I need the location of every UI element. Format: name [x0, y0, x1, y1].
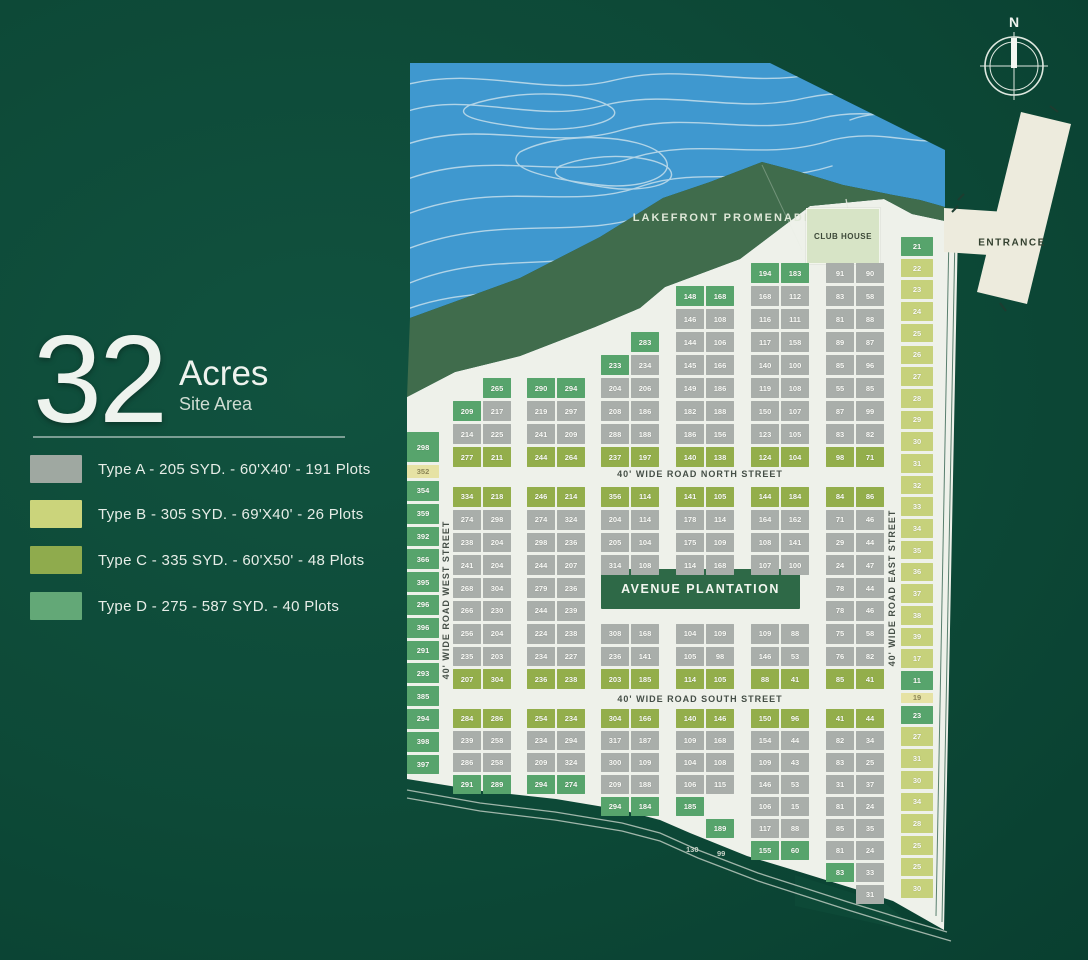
plot-cell[interactable]: 41: [856, 669, 884, 689]
plot-cell[interactable]: 182: [676, 401, 704, 421]
plot-cell[interactable]: 25: [901, 836, 933, 855]
plot-cell[interactable]: 44: [856, 533, 884, 553]
plot-cell[interactable]: 33: [901, 497, 933, 516]
plot-cell[interactable]: 35: [901, 541, 933, 560]
plot-cell[interactable]: 304: [483, 578, 511, 598]
plot-cell[interactable]: 60: [781, 841, 809, 860]
plot-cell[interactable]: 188: [706, 401, 734, 421]
plot-cell[interactable]: 294: [557, 731, 585, 750]
plot-cell[interactable]: 236: [557, 578, 585, 598]
plot-cell[interactable]: 294: [601, 797, 629, 816]
plot-cell[interactable]: 207: [557, 555, 585, 575]
plot-cell[interactable]: 168: [706, 555, 734, 575]
plot-cell[interactable]: 294: [557, 378, 585, 398]
plot-cell[interactable]: 30: [901, 432, 933, 451]
legend-item-type-a: Type A - 205 SYD. - 60'X40' - 191 Plots: [30, 455, 371, 483]
plot-cell[interactable]: 185: [676, 797, 704, 816]
plot-cell[interactable]: 398: [407, 732, 439, 752]
plot-cell[interactable]: 241: [453, 555, 481, 575]
plot-cell[interactable]: 308: [601, 624, 629, 644]
compass-icon: [980, 32, 1048, 100]
plot-cell[interactable]: 204: [483, 555, 511, 575]
plot-cell[interactable]: 356: [601, 487, 629, 507]
plot-cell[interactable]: 314: [601, 555, 629, 575]
plot-cell[interactable]: 324: [557, 753, 585, 772]
plot-cell[interactable]: 214: [557, 487, 585, 507]
plot-cell[interactable]: 164: [751, 510, 779, 530]
plot-cell[interactable]: 31: [901, 454, 933, 473]
plot-cell[interactable]: 304: [483, 669, 511, 689]
plot-cell[interactable]: 117: [751, 819, 779, 838]
plot-cell[interactable]: 100: [781, 355, 809, 375]
plot-cell[interactable]: 25: [901, 858, 933, 877]
plot-cell[interactable]: 184: [781, 487, 809, 507]
plot-cell[interactable]: 85: [826, 669, 854, 689]
plot-cell[interactable]: 274: [557, 775, 585, 794]
plot-cell[interactable]: 184: [631, 797, 659, 816]
plot-cell[interactable]: 227: [557, 647, 585, 667]
plot-cell[interactable]: 46: [856, 510, 884, 530]
plot-cell[interactable]: 298: [527, 533, 555, 553]
plot-cell[interactable]: 239: [557, 601, 585, 621]
plot-cell[interactable]: 81: [826, 841, 854, 860]
plot-cell[interactable]: 396: [407, 618, 439, 638]
plot-cell[interactable]: 83: [826, 286, 854, 306]
plot-cell[interactable]: 24: [856, 797, 884, 816]
plot-cell[interactable]: 24: [856, 841, 884, 860]
plot-cell[interactable]: 246: [527, 487, 555, 507]
plot-cell[interactable]: 203: [601, 669, 629, 689]
plot-cell[interactable]: 84: [826, 487, 854, 507]
plot-cell[interactable]: 71: [856, 447, 884, 467]
plot-cell[interactable]: 29: [901, 411, 933, 430]
plot-cell[interactable]: 238: [453, 533, 481, 553]
stray-plot-number: 130: [686, 845, 699, 854]
plot-cell[interactable]: 146: [706, 709, 734, 728]
plot-cell[interactable]: 155: [751, 841, 779, 860]
legend-swatch-type-d: [30, 592, 82, 620]
plot-cell[interactable]: 105: [706, 669, 734, 689]
plot-cell[interactable]: 106: [706, 332, 734, 352]
plot-cell[interactable]: 211: [483, 447, 511, 467]
plot-cell[interactable]: 88: [856, 309, 884, 329]
plot-cell[interactable]: 234: [631, 355, 659, 375]
plot-cell[interactable]: 234: [557, 709, 585, 728]
plot-cell[interactable]: 38: [901, 606, 933, 625]
plot-cell[interactable]: 286: [453, 753, 481, 772]
plot-cell[interactable]: 28: [901, 389, 933, 408]
plot-cell[interactable]: 83: [826, 863, 854, 882]
legend-item-type-d: Type D - 275 - 587 SYD. - 40 Plots: [30, 592, 339, 620]
plot-cell[interactable]: 27: [901, 727, 933, 746]
plot-cell[interactable]: 85: [826, 355, 854, 375]
plot-cell[interactable]: 99: [856, 401, 884, 421]
plot-cell[interactable]: 140: [751, 355, 779, 375]
plot-cell[interactable]: 44: [856, 709, 884, 728]
plot-cell[interactable]: 114: [676, 669, 704, 689]
lakefront-promenade-label: LAKEFRONT PROMENADE: [633, 212, 813, 224]
plot-cell[interactable]: 39: [901, 628, 933, 647]
plot-cell[interactable]: 104: [676, 624, 704, 644]
plot-cell[interactable]: 105: [676, 647, 704, 667]
plot-cell[interactable]: 82: [826, 731, 854, 750]
plot-cell[interactable]: 58: [856, 624, 884, 644]
plot-cell[interactable]: 238: [557, 624, 585, 644]
plot-cell[interactable]: 293: [407, 663, 439, 683]
plot-cell[interactable]: 108: [781, 378, 809, 398]
plot-cell[interactable]: 90: [856, 263, 884, 283]
plot-cell[interactable]: 395: [407, 572, 439, 592]
plot-cell[interactable]: 258: [483, 731, 511, 750]
plot-cell[interactable]: 209: [601, 775, 629, 794]
plot-cell[interactable]: 277: [453, 447, 481, 467]
plot-cell[interactable]: 286: [483, 709, 511, 728]
plot-cell[interactable]: 264: [557, 447, 585, 467]
plot-cell[interactable]: 82: [856, 647, 884, 667]
plot-cell[interactable]: 36: [901, 563, 933, 582]
plot-cell[interactable]: 207: [453, 669, 481, 689]
plot-cell[interactable]: 146: [751, 647, 779, 667]
plot-cell[interactable]: 150: [751, 709, 779, 728]
plot-cell[interactable]: 43: [781, 753, 809, 772]
club-house-block[interactable]: CLUB HOUSE: [806, 208, 880, 264]
plot-cell[interactable]: 298: [407, 432, 439, 462]
plot-cell[interactable]: 334: [453, 487, 481, 507]
plot-cell[interactable]: 168: [706, 731, 734, 750]
plot-cell[interactable]: 109: [751, 753, 779, 772]
plot-cell[interactable]: 186: [631, 401, 659, 421]
plot-cell[interactable]: 100: [781, 555, 809, 575]
plot-cell[interactable]: 366: [407, 549, 439, 569]
west-street-label: 40' WIDE ROAD WEST STREET: [441, 521, 451, 680]
plot-cell[interactable]: 244: [527, 447, 555, 467]
plot-cell[interactable]: 34: [856, 731, 884, 750]
plot-cell[interactable]: 237: [601, 447, 629, 467]
plot-cell[interactable]: 283: [631, 332, 659, 352]
plot-cell[interactable]: 185: [631, 669, 659, 689]
plot-cell[interactable]: 25: [856, 753, 884, 772]
plot-cell[interactable]: 22: [901, 259, 933, 278]
plot-cell[interactable]: 239: [453, 731, 481, 750]
plot-cell[interactable]: 234: [527, 731, 555, 750]
plot-cell[interactable]: 89: [826, 332, 854, 352]
plot-cell[interactable]: 82: [856, 424, 884, 444]
plot-cell[interactable]: 44: [856, 578, 884, 598]
plot-cell[interactable]: 27: [901, 367, 933, 386]
plot-cell[interactable]: 28: [901, 814, 933, 833]
plot-cell[interactable]: 297: [557, 401, 585, 421]
plot-cell[interactable]: 178: [676, 510, 704, 530]
plot-cell[interactable]: 359: [407, 504, 439, 524]
plot-cell[interactable]: 53: [781, 775, 809, 794]
plot-cell[interactable]: 274: [527, 510, 555, 530]
plot-cell[interactable]: 11: [901, 671, 933, 690]
plot-cell[interactable]: 256: [453, 624, 481, 644]
plot-cell[interactable]: 298: [483, 510, 511, 530]
plot-cell[interactable]: 138: [706, 447, 734, 467]
plot-cell[interactable]: 274: [453, 510, 481, 530]
plot-cell[interactable]: 31: [826, 775, 854, 794]
plot-cell[interactable]: 96: [856, 355, 884, 375]
plot-cell[interactable]: 392: [407, 527, 439, 547]
plot-cell[interactable]: 244: [527, 555, 555, 575]
plot-cell[interactable]: 187: [631, 731, 659, 750]
plot-cell[interactable]: 144: [751, 487, 779, 507]
plot-cell[interactable]: 31: [856, 885, 884, 904]
plot-cell[interactable]: 25: [901, 324, 933, 343]
plot-cell[interactable]: 29: [826, 533, 854, 553]
plot-cell[interactable]: 209: [557, 424, 585, 444]
plot-cell[interactable]: 258: [483, 753, 511, 772]
plot-cell[interactable]: 34: [901, 793, 933, 812]
plot-cell[interactable]: 81: [826, 797, 854, 816]
plot-cell[interactable]: 85: [856, 378, 884, 398]
plot-cell[interactable]: 81: [826, 309, 854, 329]
plot-cell[interactable]: 108: [631, 555, 659, 575]
plot-cell[interactable]: 204: [601, 378, 629, 398]
plot-cell[interactable]: 354: [407, 481, 439, 501]
plot-cell[interactable]: 83: [826, 424, 854, 444]
plot-cell[interactable]: 114: [706, 510, 734, 530]
plot-cell[interactable]: 236: [601, 647, 629, 667]
plot-cell[interactable]: 124: [751, 447, 779, 467]
plot-cell[interactable]: 197: [631, 447, 659, 467]
plot-cell[interactable]: 33: [856, 863, 884, 882]
plot-cell[interactable]: 268: [453, 578, 481, 598]
plot-cell[interactable]: 47: [856, 555, 884, 575]
plot-cell[interactable]: 154: [751, 731, 779, 750]
plot-cell[interactable]: 88: [781, 624, 809, 644]
plot-cell[interactable]: 104: [631, 533, 659, 553]
plot-cell[interactable]: 238: [557, 669, 585, 689]
plot-cell[interactable]: 279: [527, 578, 555, 598]
plot-cell[interactable]: 105: [781, 424, 809, 444]
plot-cell[interactable]: 107: [781, 401, 809, 421]
plot-cell[interactable]: 146: [676, 309, 704, 329]
plot-cell[interactable]: 41: [781, 669, 809, 689]
plot-cell[interactable]: 109: [751, 624, 779, 644]
plot-cell[interactable]: 288: [601, 424, 629, 444]
plot-cell[interactable]: 291: [407, 641, 439, 661]
plot-cell[interactable]: 146: [751, 775, 779, 794]
plot-cell[interactable]: 205: [601, 533, 629, 553]
plot-cell[interactable]: 91: [826, 263, 854, 283]
plot-cell[interactable]: 30: [901, 879, 933, 898]
plot-cell[interactable]: 289: [483, 775, 511, 794]
plot-cell[interactable]: 86: [856, 487, 884, 507]
plot-cell[interactable]: 111: [781, 309, 809, 329]
plot-cell[interactable]: 233: [601, 355, 629, 375]
plot-cell[interactable]: 204: [601, 510, 629, 530]
plot-cell[interactable]: 204: [483, 624, 511, 644]
plot-cell[interactable]: 87: [856, 332, 884, 352]
plot-cell[interactable]: 26: [901, 346, 933, 365]
plot-cell[interactable]: 284: [453, 709, 481, 728]
plot-cell[interactable]: 114: [631, 510, 659, 530]
plot-cell[interactable]: 78: [826, 578, 854, 598]
plot-cell[interactable]: 30: [901, 771, 933, 790]
plot-cell[interactable]: 217: [483, 401, 511, 421]
south-street-label: 40' WIDE ROAD SOUTH STREET: [617, 694, 782, 704]
plot-cell[interactable]: 145: [676, 355, 704, 375]
plot-cell[interactable]: 140: [676, 447, 704, 467]
entrance-label: ENTRANCE: [978, 238, 1046, 249]
plot-cell[interactable]: 104: [676, 753, 704, 772]
plot-cell[interactable]: 98: [826, 447, 854, 467]
plot-cell[interactable]: 85: [826, 819, 854, 838]
plot-cell[interactable]: 107: [751, 555, 779, 575]
plot-cell[interactable]: 98: [706, 647, 734, 667]
plot-cell[interactable]: 112: [781, 286, 809, 306]
plot-cell[interactable]: 141: [676, 487, 704, 507]
plot-cell[interactable]: 53: [781, 647, 809, 667]
plot-cell[interactable]: 162: [781, 510, 809, 530]
plot-cell[interactable]: 225: [483, 424, 511, 444]
plot-cell[interactable]: 219: [527, 401, 555, 421]
plot-cell[interactable]: 204: [483, 533, 511, 553]
plot-cell[interactable]: 123: [751, 424, 779, 444]
plot-cell[interactable]: 186: [676, 424, 704, 444]
plot-cell[interactable]: 75: [826, 624, 854, 644]
plot-cell[interactable]: 41: [826, 709, 854, 728]
plot-cell[interactable]: 108: [751, 533, 779, 553]
plot-cell[interactable]: 158: [781, 332, 809, 352]
plot-cell[interactable]: 175: [676, 533, 704, 553]
plot-cell[interactable]: 352: [407, 465, 439, 478]
plot-cell[interactable]: 19: [901, 693, 933, 703]
plot-cell[interactable]: 168: [706, 286, 734, 306]
plot-cell[interactable]: 208: [601, 401, 629, 421]
plot-cell[interactable]: 236: [557, 533, 585, 553]
plot-cell[interactable]: 119: [751, 378, 779, 398]
plot-cell[interactable]: 188: [631, 775, 659, 794]
plot-cell[interactable]: 141: [781, 533, 809, 553]
plot-cell[interactable]: 218: [483, 487, 511, 507]
plot-cell[interactable]: 44: [781, 731, 809, 750]
plot-cell[interactable]: 294: [527, 775, 555, 794]
plot-cell[interactable]: 290: [527, 378, 555, 398]
plot-cell[interactable]: 105: [706, 487, 734, 507]
plot-cell[interactable]: 106: [676, 775, 704, 794]
plot-cell[interactable]: 140: [676, 709, 704, 728]
plot-cell[interactable]: 35: [856, 819, 884, 838]
plot-cell[interactable]: 58: [856, 286, 884, 306]
plot-cell[interactable]: 214: [453, 424, 481, 444]
plot-cell[interactable]: 291: [453, 775, 481, 794]
plot-cell[interactable]: 55: [826, 378, 854, 398]
legend-label-type-d: Type D - 275 - 587 SYD. - 40 Plots: [98, 598, 339, 615]
plot-cell[interactable]: 194: [751, 263, 779, 283]
plot-cell[interactable]: 209: [527, 753, 555, 772]
plot-cell[interactable]: 31: [901, 749, 933, 768]
plot-cell[interactable]: 17: [901, 649, 933, 668]
plot-cell[interactable]: 116: [751, 309, 779, 329]
plot-cell[interactable]: 300: [601, 753, 629, 772]
plot-cell[interactable]: 189: [706, 819, 734, 838]
plot-cell[interactable]: 88: [751, 669, 779, 689]
plot-cell[interactable]: 21: [901, 237, 933, 256]
plot-cell[interactable]: 166: [631, 709, 659, 728]
plot-cell[interactable]: 37: [856, 775, 884, 794]
plot-cell[interactable]: 168: [631, 624, 659, 644]
plot-cell[interactable]: 156: [706, 424, 734, 444]
plot-cell[interactable]: 23: [901, 706, 933, 725]
stray-plot-number: 99: [717, 849, 725, 858]
plot-cell[interactable]: 265: [483, 378, 511, 398]
plot-cell[interactable]: 166: [706, 355, 734, 375]
plot-cell[interactable]: 304: [601, 709, 629, 728]
plot-cell[interactable]: 109: [706, 533, 734, 553]
plot-cell[interactable]: 71: [826, 510, 854, 530]
plot-cell[interactable]: 149: [676, 378, 704, 398]
plot-cell[interactable]: 254: [527, 709, 555, 728]
plot-cell[interactable]: 83: [826, 753, 854, 772]
plot-cell[interactable]: 46: [856, 601, 884, 621]
plot-cell[interactable]: 37: [901, 584, 933, 603]
plot-cell[interactable]: 266: [453, 601, 481, 621]
plot-cell[interactable]: 236: [527, 669, 555, 689]
plot-cell[interactable]: 108: [706, 753, 734, 772]
plot-cell[interactable]: 244: [527, 601, 555, 621]
plot-cell[interactable]: 235: [453, 647, 481, 667]
plot-cell[interactable]: 224: [527, 624, 555, 644]
plot-cell[interactable]: 15: [781, 797, 809, 816]
plot-cell[interactable]: 109: [676, 731, 704, 750]
plot-cell[interactable]: 109: [706, 624, 734, 644]
plot-cell[interactable]: 24: [901, 302, 933, 321]
plot-cell[interactable]: 168: [751, 286, 779, 306]
plot-cell[interactable]: 294: [407, 709, 439, 729]
plot-cell[interactable]: 24: [826, 555, 854, 575]
plot-cell[interactable]: 34: [901, 519, 933, 538]
plot-cell[interactable]: 317: [601, 731, 629, 750]
plot-cell[interactable]: 141: [631, 647, 659, 667]
plot-cell[interactable]: 186: [706, 378, 734, 398]
plot-cell[interactable]: 206: [631, 378, 659, 398]
plot-cell[interactable]: 114: [676, 555, 704, 575]
plot-cell[interactable]: 78: [826, 601, 854, 621]
plot-cell[interactable]: 108: [706, 309, 734, 329]
plot-cell[interactable]: 144: [676, 332, 704, 352]
plot-cell[interactable]: 397: [407, 755, 439, 775]
legend-label-type-c: Type C - 335 SYD. - 60'X50' - 48 Plots: [98, 552, 364, 569]
plot-cell[interactable]: 209: [453, 401, 481, 421]
plot-cell[interactable]: 109: [631, 753, 659, 772]
plot-cell[interactable]: 188: [631, 424, 659, 444]
plot-cell[interactable]: 241: [527, 424, 555, 444]
plot-cell[interactable]: 23: [901, 280, 933, 299]
plot-cell[interactable]: 115: [706, 775, 734, 794]
plot-cell[interactable]: 76: [826, 647, 854, 667]
plot-cell[interactable]: 114: [631, 487, 659, 507]
plot-cell[interactable]: 150: [751, 401, 779, 421]
plot-cell[interactable]: 324: [557, 510, 585, 530]
plot-cell[interactable]: 203: [483, 647, 511, 667]
plot-cell[interactable]: 87: [826, 401, 854, 421]
plot-cell[interactable]: 117: [751, 332, 779, 352]
plot-cell[interactable]: 106: [751, 797, 779, 816]
plot-cell[interactable]: 96: [781, 709, 809, 728]
plot-cell[interactable]: 148: [676, 286, 704, 306]
plot-cell[interactable]: 32: [901, 476, 933, 495]
plot-cell[interactable]: 230: [483, 601, 511, 621]
plot-cell[interactable]: 234: [527, 647, 555, 667]
plot-cell[interactable]: 183: [781, 263, 809, 283]
plot-cell[interactable]: 88: [781, 819, 809, 838]
plot-cell[interactable]: 104: [781, 447, 809, 467]
plot-cell[interactable]: 385: [407, 686, 439, 706]
plot-cell[interactable]: 296: [407, 595, 439, 615]
